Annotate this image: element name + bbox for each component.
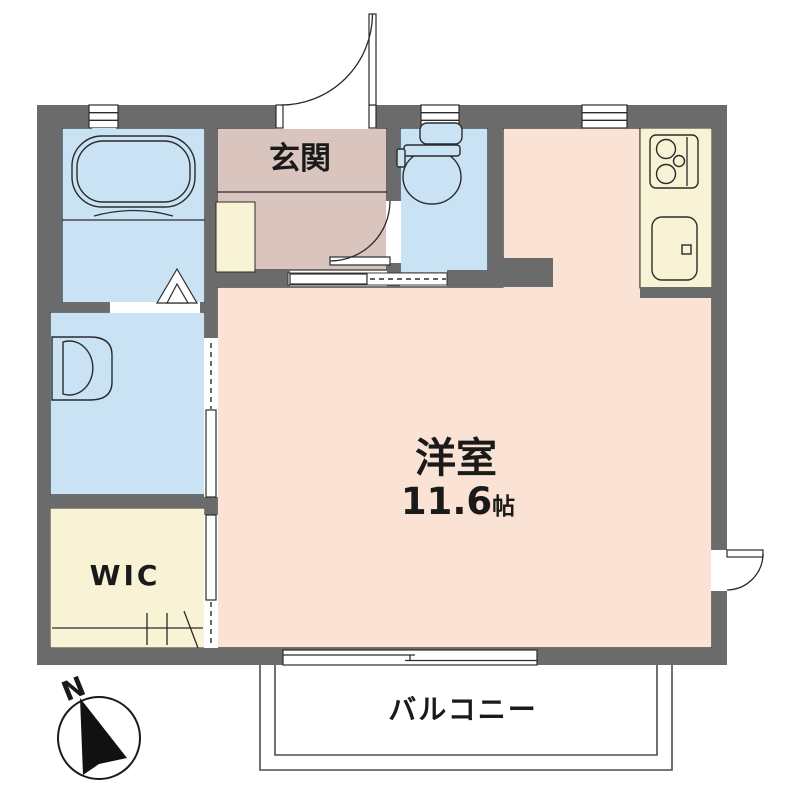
washbasin-icon bbox=[52, 337, 112, 400]
compass-icon: N bbox=[58, 671, 140, 779]
wall-toilet-stub bbox=[503, 258, 553, 287]
wall-toilet-right bbox=[488, 128, 503, 287]
sliding-door-icon-hall bbox=[288, 273, 447, 285]
window-icon-main bbox=[582, 105, 627, 128]
floor-plan-page: N 玄関 洋室 11.6帖 WIC バルコニー bbox=[0, 0, 800, 800]
swing-door-icon-entrance bbox=[276, 14, 376, 129]
balcony-label: バルコニー bbox=[388, 693, 537, 726]
wall-wash-wic-divider bbox=[37, 495, 217, 508]
wic-label: WIC bbox=[90, 559, 161, 592]
window-icon-balcony-sliding bbox=[283, 650, 537, 665]
kitchen-sink-icon bbox=[652, 217, 697, 280]
wall-left-lower bbox=[37, 312, 50, 648]
main-room-label: 洋室 bbox=[415, 434, 497, 482]
entrance-label: 玄関 bbox=[269, 141, 331, 177]
wall-left-upper bbox=[37, 105, 62, 312]
sliding-door-icon-wic bbox=[204, 515, 218, 648]
swing-door-icon-right bbox=[711, 550, 763, 591]
window-sill bbox=[92, 128, 116, 135]
shoe-cabinet-icon bbox=[216, 202, 255, 272]
wall-hall-bottom bbox=[217, 270, 290, 287]
sliding-door-icon-washroom bbox=[204, 338, 218, 497]
stove-icon bbox=[650, 135, 698, 188]
wall-kitchen-bottom bbox=[640, 287, 713, 298]
window-icon-bathroom bbox=[89, 105, 118, 135]
floor-plan: N 玄関 洋室 11.6帖 WIC バルコニー bbox=[0, 0, 800, 800]
